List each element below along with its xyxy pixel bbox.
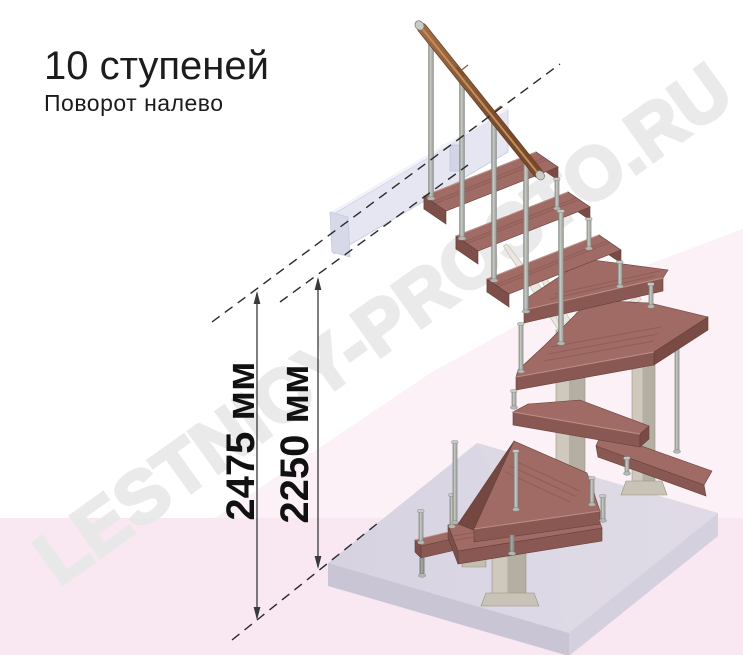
svg-text:2250 мм: 2250 мм bbox=[273, 364, 317, 523]
svg-text:2475 мм: 2475 мм bbox=[219, 361, 263, 520]
svg-text:Поворот налево: Поворот налево bbox=[44, 90, 224, 116]
svg-text:10 ступеней: 10 ступеней bbox=[44, 44, 269, 88]
